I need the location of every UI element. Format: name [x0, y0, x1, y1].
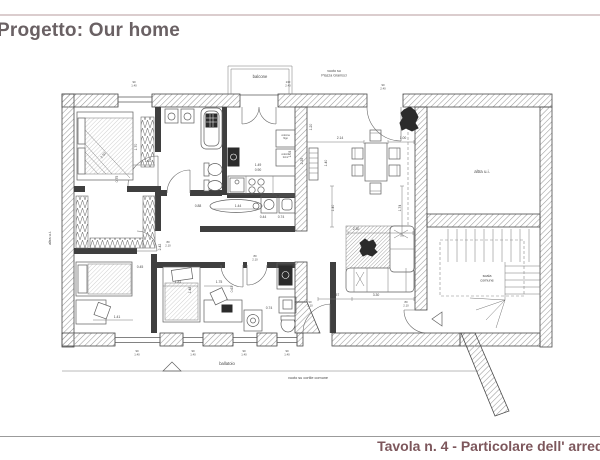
second-bathroom	[244, 263, 296, 332]
dimension-text: 1.49	[255, 163, 262, 167]
desk-left	[76, 300, 111, 324]
sink-console	[279, 297, 296, 313]
laundry-units	[261, 196, 295, 213]
opening-tag: 901.40	[284, 349, 290, 357]
dimension-text: 1.75	[216, 280, 223, 284]
bathtub	[201, 108, 222, 149]
double-bed	[77, 112, 133, 180]
sheet-title: Tavola n. 4 - Particolare dell' arredo	[377, 438, 600, 454]
dimension-text: 0.63	[230, 286, 234, 293]
bidet	[204, 180, 222, 191]
dimension-text: 1.70	[134, 144, 138, 151]
desk-middle	[204, 288, 242, 322]
dimension-text: 0.75	[115, 176, 119, 183]
opening-tag: 802.10	[403, 300, 409, 308]
dimension-text: 0.90	[255, 168, 262, 172]
single-bed-middle	[163, 267, 200, 322]
opening-tag: 901.40	[131, 80, 137, 88]
skylight-triangle	[163, 362, 181, 371]
stove	[249, 179, 264, 193]
opening-tag: 901.40	[241, 349, 247, 357]
dimension-text: 1.74	[398, 205, 402, 212]
label-piazza-void: vuoto suPiazza Gramsci	[321, 69, 346, 77]
label-ballatoio: ballatoio	[219, 361, 235, 366]
shower	[244, 310, 262, 331]
dimension-text: 1.48	[188, 287, 192, 294]
single-bed-left	[76, 262, 132, 296]
dimension-text: 1.00	[400, 136, 407, 140]
label-scala-comune: scalacomune	[480, 274, 494, 283]
dimension-text: 0.88	[195, 204, 202, 208]
presentation-slide: Progetto: Our home	[0, 0, 600, 460]
dimension-text: 1.40	[331, 205, 335, 212]
dimension-text: 3.30	[373, 293, 380, 297]
dimension-text: 2.35	[300, 158, 304, 165]
plant-icon	[360, 239, 377, 256]
radiator	[309, 148, 318, 180]
label-altra-ui-left: altra u.i.	[48, 231, 52, 245]
dimension-text: 1.41	[114, 315, 121, 319]
dimension-text: 0.45	[137, 265, 144, 269]
toilet	[204, 163, 222, 176]
dimension-text: 1.10	[145, 159, 152, 163]
floor-plan-drawing: balconevuoto suPiazza Gramscialtra u.i.s…	[0, 0, 600, 460]
dining-table	[352, 130, 400, 194]
plant-icon	[400, 107, 418, 131]
dimension-text: 2.30	[353, 227, 360, 231]
footer-rule	[0, 436, 600, 437]
dimension-text: 1.20	[309, 124, 313, 131]
dimension-text: 0.74	[278, 215, 285, 219]
opening-tag: 902.10	[307, 300, 313, 308]
opening-tag: 802.10	[165, 240, 171, 248]
label-altra-ui: altra u.i.	[474, 169, 490, 174]
washing-machine	[228, 148, 239, 166]
dimension-text: 1.57	[333, 293, 340, 297]
label-cortile-void: vuoto su cortile comune	[288, 376, 328, 380]
walk-in-closet-wardrobes	[76, 196, 155, 248]
dimension-text: 1.81	[175, 280, 182, 284]
label-balcone: balcone	[253, 74, 268, 79]
dimension-text: 1.44	[235, 204, 242, 208]
dimension-text: 1.03	[288, 151, 292, 158]
dimension-text: 2.42	[158, 244, 162, 251]
dimension-text: 1.40	[324, 160, 328, 167]
opening-tag: 1302.40	[285, 80, 291, 88]
opening-tag: 802.10	[252, 254, 258, 262]
opening-tag: 902.40	[380, 83, 386, 91]
dimension-text: 2.14	[337, 136, 344, 140]
label-colonna-frigo: colonnafrigo	[281, 134, 290, 140]
kitchen-counter	[228, 176, 295, 194]
dimension-text: 0.74	[266, 306, 273, 310]
opening-tag: 901.40	[134, 349, 140, 357]
twin-sinks	[165, 109, 194, 123]
opening-tag: 901.40	[190, 349, 196, 357]
dimension-text: 0.44	[260, 215, 267, 219]
